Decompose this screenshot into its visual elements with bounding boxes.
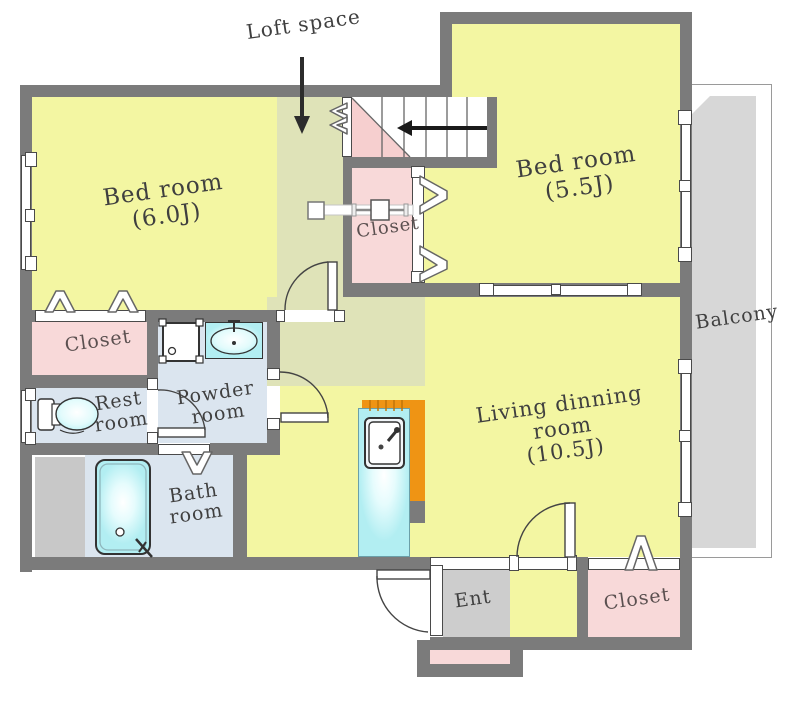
frame-powder-door-b (267, 418, 280, 430)
wall-bottom-right (577, 637, 692, 650)
wall-rest-divider-a (147, 322, 158, 380)
wall-stairs-right (487, 97, 497, 157)
powder-sink-counter (205, 322, 263, 359)
window-rest-room-tick1 (25, 388, 36, 401)
window-brs-tick1 (479, 283, 494, 296)
wall-bottom-main (20, 557, 430, 570)
window-bre-tick3 (678, 247, 692, 262)
frame-bedroom-left-door-b (334, 310, 345, 322)
window-bre-tick2 (679, 180, 691, 192)
loft-space-label: Loft space (235, 4, 372, 45)
stairs-floor (352, 97, 487, 157)
frame-rest-door-b (147, 432, 158, 444)
wall-step-bottom (417, 664, 523, 677)
bathtub (95, 459, 151, 555)
floor-plan: Loft space Bed room (6.0J) Bed room (5.5… (0, 0, 800, 707)
window-bre-tick1 (678, 110, 692, 125)
wall-rest-bottom-a (32, 443, 158, 455)
washing-machine (162, 322, 200, 362)
wall-closet-rest (32, 375, 147, 388)
window-brs-tick2 (551, 284, 561, 295)
wall-under-entrance (430, 637, 577, 650)
window-brs-tick3 (627, 283, 642, 296)
window-bedroom-left-tick2 (25, 209, 35, 222)
window-bedroom-right-south (483, 285, 640, 296)
threshold-bath-door (158, 444, 210, 455)
track-bedroom-left-closet (35, 310, 146, 322)
track-closet-middle-cap-top (411, 166, 425, 178)
wall-step-right (510, 650, 523, 677)
loft-area-tint-strip (277, 97, 345, 310)
wall-top-main (20, 85, 452, 97)
door-entrance (377, 570, 430, 632)
wall-closet-middle-left (343, 157, 352, 283)
window-le-tick1 (678, 359, 692, 374)
window-bedroom-left-tick3 (25, 256, 37, 271)
frame-bedroom-left-door-a (276, 310, 285, 322)
window-le-tick2 (679, 430, 691, 442)
track-closet-br-door (588, 558, 680, 570)
track-closet-middle-cap-bot (411, 271, 425, 283)
entrance-step (430, 650, 510, 664)
wall-rest-bottom-b (210, 443, 280, 455)
window-le-tick3 (678, 502, 692, 517)
window-rest-room-tick2 (25, 432, 36, 445)
window-bedroom-left-tick1 (25, 152, 37, 167)
frame-living-door-a (509, 555, 519, 571)
wall-powder-right-a (267, 322, 280, 370)
wall-top-upper (440, 12, 692, 24)
opening-bedroom-left-door (285, 310, 334, 322)
frame-living-door-b (567, 555, 577, 571)
living-room-floor-c (247, 455, 280, 557)
track-stairs-closet-door (342, 97, 352, 157)
void-space (35, 457, 85, 557)
wall-upper-left (440, 12, 452, 97)
kitchen-sink (364, 417, 405, 469)
